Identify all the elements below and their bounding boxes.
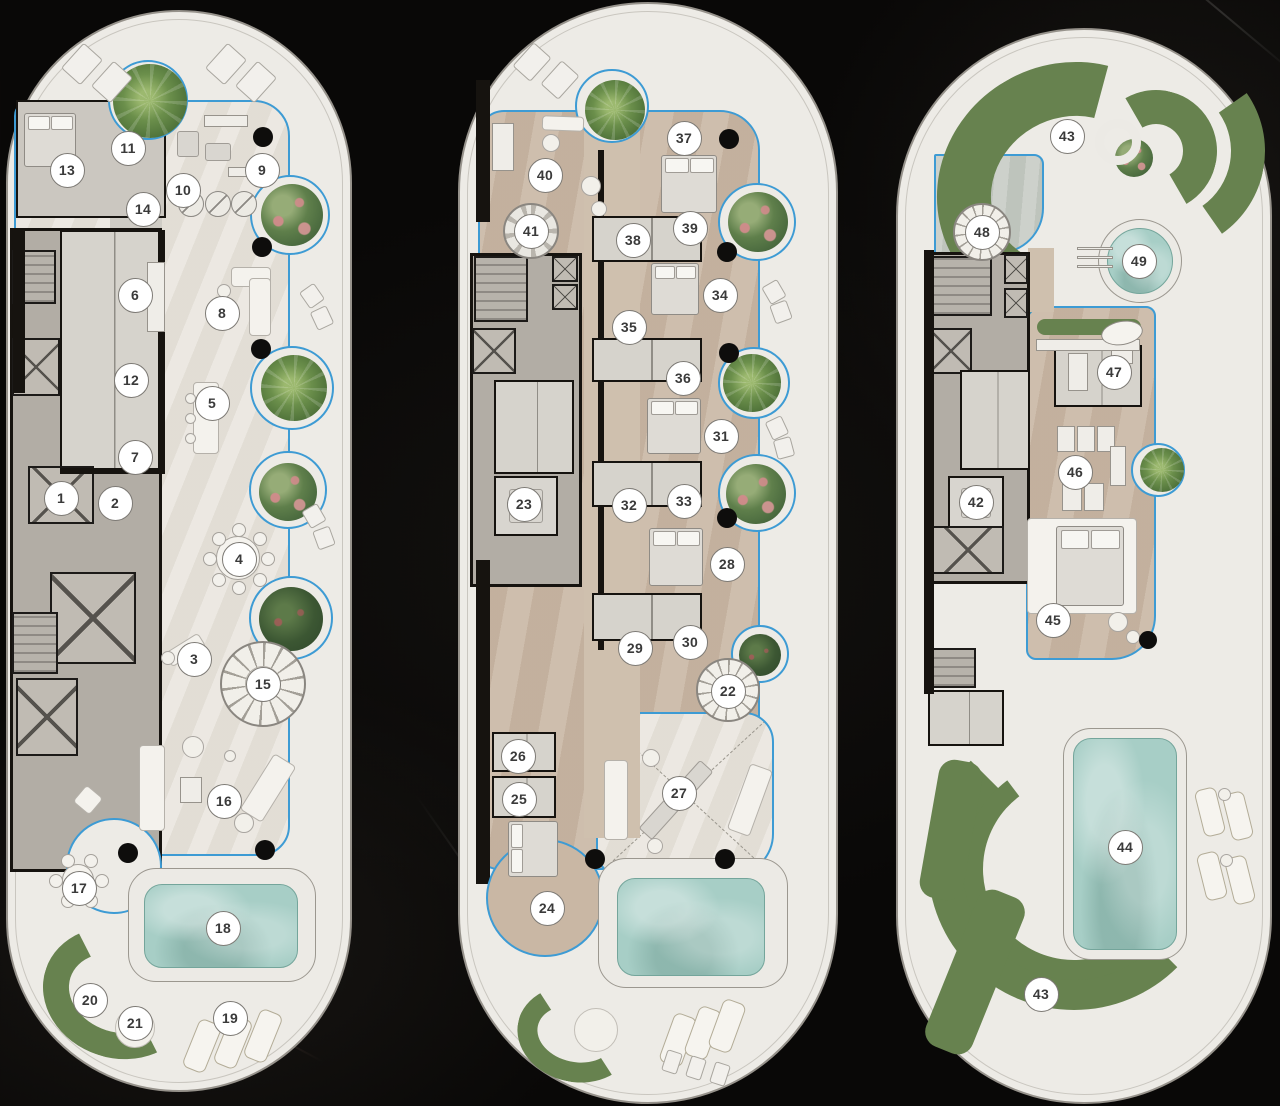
pillow (511, 849, 524, 873)
unit-marker-33: 33 (667, 484, 702, 519)
unit-marker-8: 8 (205, 296, 240, 331)
bed (651, 263, 699, 315)
round-stool (205, 191, 231, 217)
unit-marker-13: 13 (50, 153, 85, 188)
unit-marker-49: 49 (1122, 244, 1157, 279)
structural-column (715, 849, 735, 869)
unit-marker-7: 7 (118, 440, 153, 475)
wall (476, 80, 490, 222)
furniture (604, 760, 628, 840)
unit-marker-26: 26 (501, 739, 536, 774)
unit-marker-37: 37 (667, 121, 702, 156)
seat (581, 176, 601, 196)
unit-marker-41: 41 (514, 214, 549, 249)
seat (185, 413, 196, 424)
dining-chair (261, 552, 275, 566)
unit-marker-16: 16 (207, 784, 242, 819)
elevator (50, 572, 136, 664)
dining-chair (61, 854, 75, 868)
structural-column (585, 849, 605, 869)
dining-chair (232, 581, 246, 595)
elevator (930, 328, 972, 374)
pillow (665, 158, 689, 172)
unit-marker-9: 9 (245, 153, 280, 188)
unit-marker-15: 15 (246, 667, 281, 702)
seat (1126, 630, 1140, 644)
pillow (676, 266, 696, 279)
unit-marker-24: 24 (530, 891, 565, 926)
unit-marker-19: 19 (213, 1001, 248, 1036)
unit-marker-46: 46 (1058, 455, 1093, 490)
room (928, 690, 1004, 746)
furniture (542, 115, 584, 131)
cabinet (1084, 483, 1104, 511)
seat (161, 651, 175, 665)
structural-column (719, 343, 739, 363)
seat (647, 838, 663, 854)
furniture (249, 278, 271, 336)
unit-marker-2: 2 (98, 486, 133, 521)
unit-marker-21: 21 (118, 1006, 153, 1041)
structural-column (1139, 631, 1157, 649)
unit-marker-36: 36 (666, 361, 701, 396)
garden-path-ring (1095, 119, 1141, 165)
structural-column (719, 129, 739, 149)
unit-marker-38: 38 (616, 223, 651, 258)
unit-marker-17: 17 (62, 871, 97, 906)
hallway (1028, 248, 1054, 312)
staircase (12, 612, 58, 674)
dining-chair (253, 532, 267, 546)
seat (542, 134, 560, 152)
pond (574, 1008, 618, 1052)
seat (185, 433, 196, 444)
furniture (139, 745, 165, 831)
unit-marker-47: 47 (1097, 355, 1132, 390)
round-stool (231, 191, 257, 217)
unit-marker-12: 12 (114, 363, 149, 398)
dining-chair (232, 523, 246, 537)
elevator (552, 256, 578, 282)
pillow (655, 266, 675, 279)
wall (13, 228, 25, 393)
unit-marker-22: 22 (711, 674, 746, 709)
seat (591, 201, 607, 217)
elevator (1004, 254, 1028, 284)
unit-marker-28: 28 (710, 547, 745, 582)
flower-bush (728, 192, 788, 252)
wall (476, 560, 490, 884)
elevator (1004, 288, 1028, 318)
unit-marker-4: 4 (222, 542, 257, 577)
pillow (1061, 530, 1089, 549)
seat (642, 749, 660, 767)
flower-bush (261, 184, 323, 246)
dining-chair (95, 874, 109, 888)
structural-column (717, 242, 737, 262)
elevator (16, 678, 78, 756)
pillow (651, 401, 674, 415)
room (494, 380, 574, 474)
dining-chair (212, 573, 226, 587)
seat (1218, 788, 1231, 801)
dining-chair (253, 573, 267, 587)
pillow (653, 531, 676, 545)
seat (182, 736, 204, 758)
unit-marker-40: 40 (528, 158, 563, 193)
unit-marker-27: 27 (662, 776, 697, 811)
bed (649, 528, 703, 586)
dining-chair (49, 874, 63, 888)
unit-marker-3: 3 (177, 642, 212, 677)
unit-marker-39: 39 (673, 211, 708, 246)
unit-marker-1: 1 (44, 481, 79, 516)
staircase (930, 648, 976, 688)
pillow (690, 158, 714, 172)
unit-marker-18: 18 (206, 911, 241, 946)
pillow (675, 401, 698, 415)
unit-marker-32: 32 (612, 488, 647, 523)
cabinet (1077, 426, 1095, 452)
seat (1220, 854, 1233, 867)
cabinet (492, 123, 514, 171)
unit-marker-44: 44 (1108, 830, 1143, 865)
pillow (1091, 530, 1119, 549)
seat (234, 813, 254, 833)
bed (661, 155, 717, 213)
swimming-pool (617, 878, 765, 976)
dining-chair (212, 532, 226, 546)
cabinet (1077, 256, 1113, 259)
structural-column (253, 127, 273, 147)
structural-column (717, 508, 737, 528)
structural-column (118, 843, 138, 863)
pillow (28, 116, 50, 129)
bed (647, 398, 701, 454)
unit-marker-30: 30 (673, 625, 708, 660)
unit-marker-29: 29 (618, 631, 653, 666)
pillow (51, 116, 73, 129)
unit-marker-34: 34 (703, 278, 738, 313)
furniture (205, 143, 231, 161)
unit-marker-43: 43 (1024, 977, 1059, 1012)
unit-marker-20: 20 (73, 983, 108, 1018)
cabinet (1110, 446, 1126, 486)
structural-column (251, 339, 271, 359)
elevator (552, 284, 578, 310)
bed (1056, 526, 1124, 606)
unit-marker-5: 5 (195, 386, 230, 421)
pillow (511, 824, 524, 848)
unit-marker-43: 43 (1050, 119, 1085, 154)
pillow (677, 531, 700, 545)
room (60, 230, 160, 470)
seat (185, 393, 196, 404)
room (960, 370, 1030, 470)
palm-tree (585, 80, 645, 140)
unit-marker-23: 23 (507, 487, 542, 522)
palm-tree (1140, 448, 1184, 492)
cabinet (180, 777, 202, 803)
unit-marker-42: 42 (959, 485, 994, 520)
cabinet (1077, 247, 1113, 250)
seat (1108, 612, 1128, 632)
unit-marker-10: 10 (166, 173, 201, 208)
unit-marker-11: 11 (111, 131, 146, 166)
dining-chair (84, 854, 98, 868)
unit-marker-14: 14 (126, 192, 161, 227)
unit-marker-35: 35 (612, 310, 647, 345)
cabinet (1057, 426, 1075, 452)
unit-marker-31: 31 (704, 419, 739, 454)
cabinet (1077, 265, 1113, 268)
cabinet (204, 115, 248, 127)
bed (508, 821, 558, 877)
elevator (472, 328, 516, 374)
dining-chair (203, 552, 217, 566)
palm-tree (261, 355, 327, 421)
unit-marker-25: 25 (502, 782, 537, 817)
structural-column (252, 237, 272, 257)
unit-marker-45: 45 (1036, 603, 1071, 638)
staircase (932, 256, 992, 316)
unit-marker-6: 6 (118, 278, 153, 313)
structural-column (255, 840, 275, 860)
floor-plan-canvas: { "palette": { "background_marble": "#09… (0, 0, 1280, 1106)
elevator (932, 526, 1004, 574)
wall (924, 250, 934, 694)
seat (224, 750, 236, 762)
cabinet (1068, 353, 1088, 391)
unit-marker-48: 48 (965, 215, 1000, 250)
furniture (177, 131, 199, 157)
palm-tree (723, 354, 781, 412)
staircase (474, 256, 528, 322)
